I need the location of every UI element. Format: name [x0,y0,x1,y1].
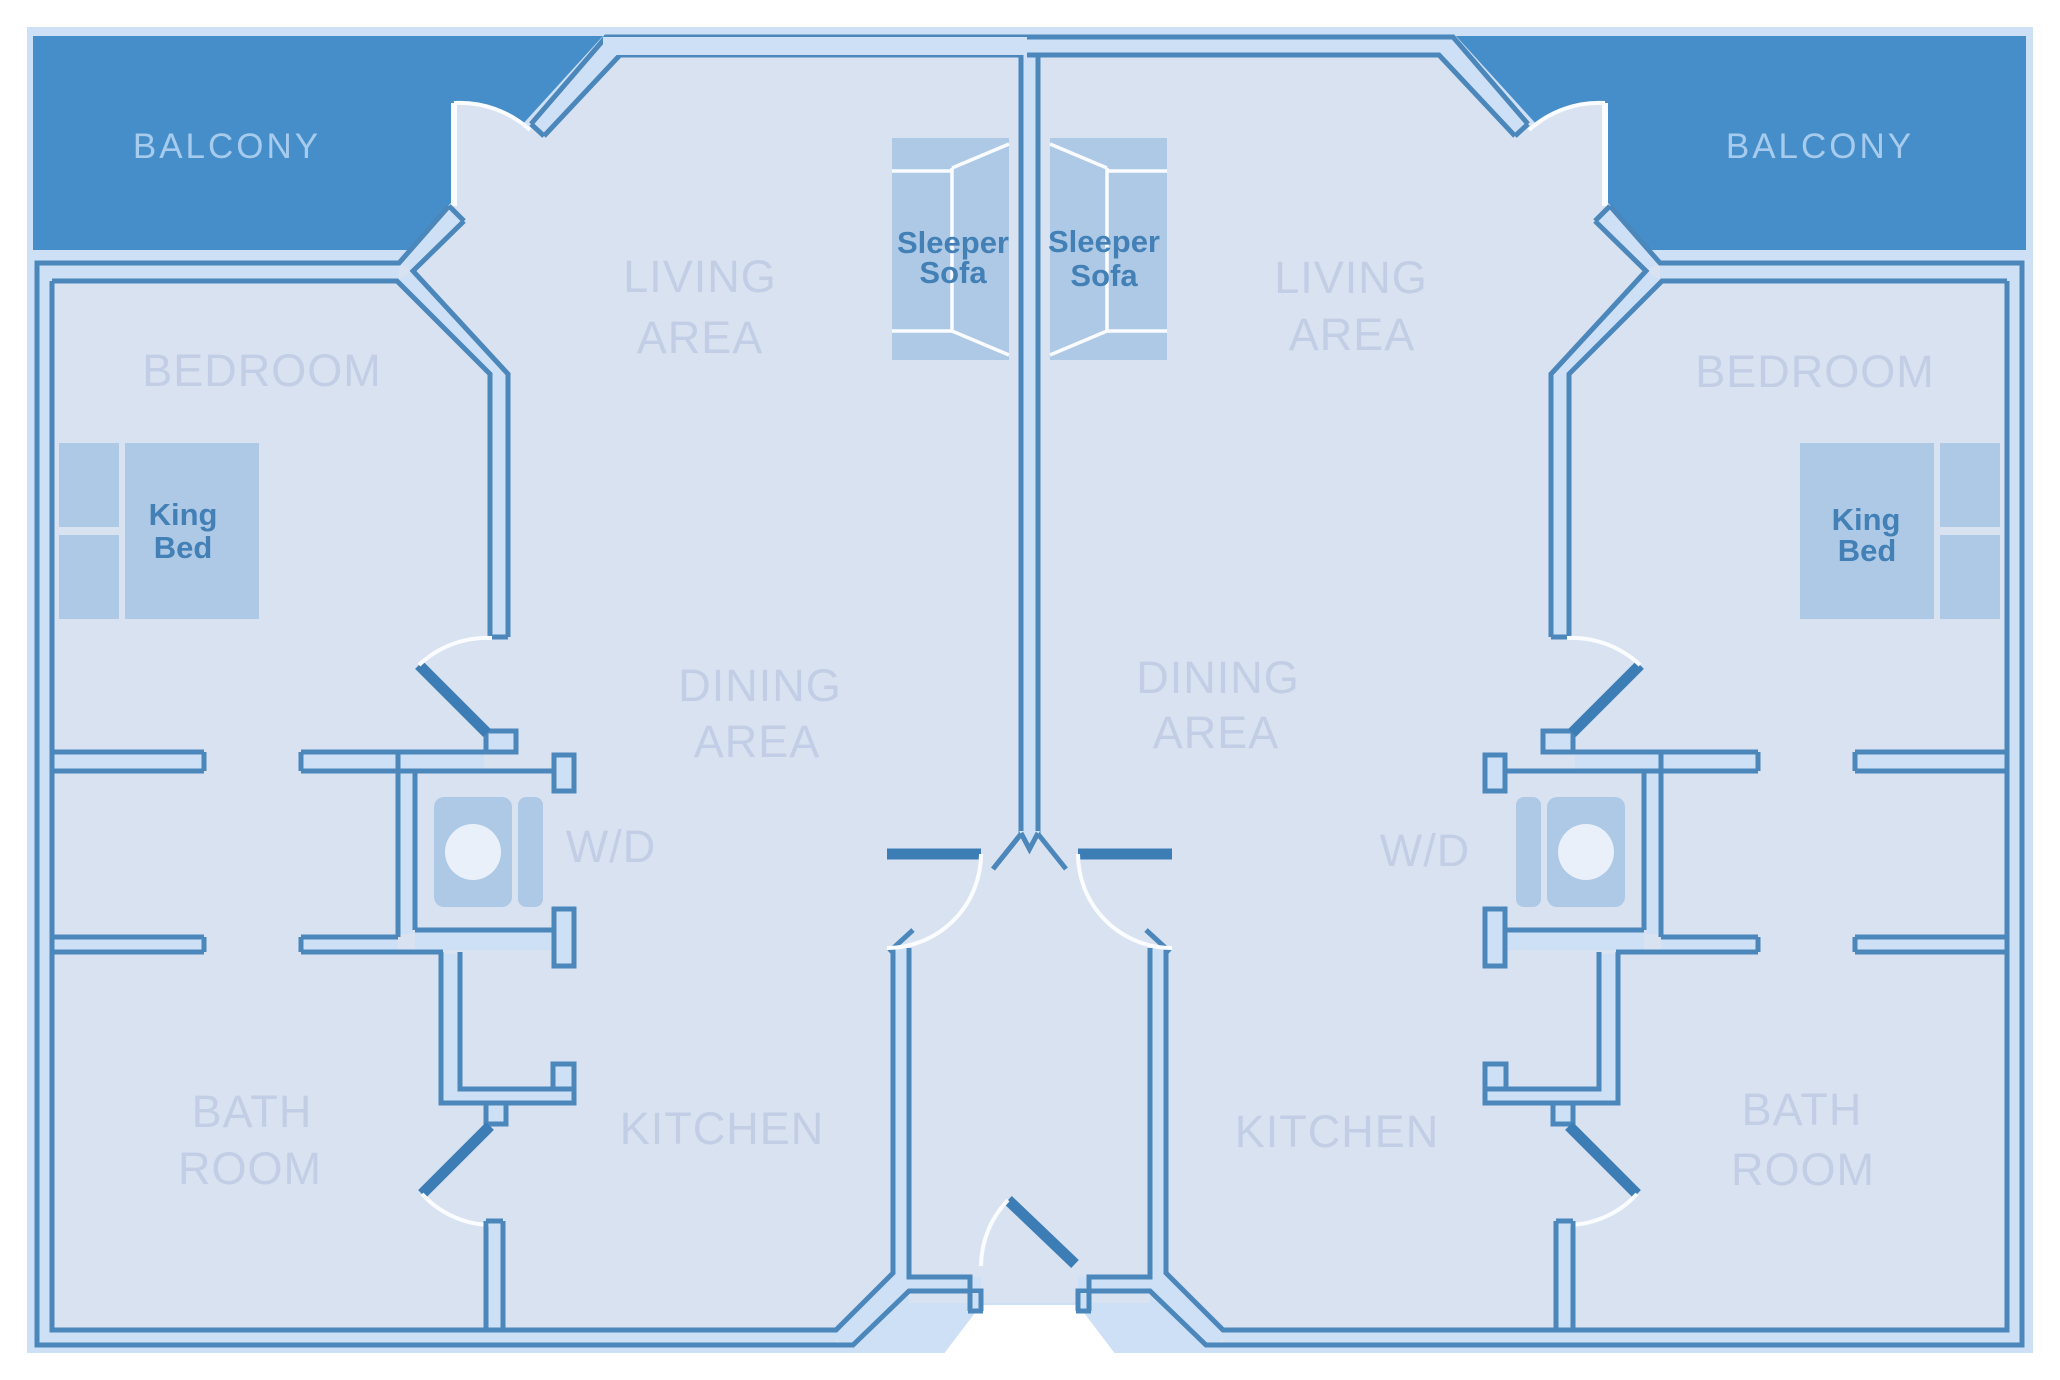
svg-text:King: King [1832,502,1901,537]
svg-text:ROOM: ROOM [178,1143,322,1194]
svg-text:AREA: AREA [637,312,764,363]
svg-text:AREA: AREA [694,716,821,767]
svg-text:Sleeper: Sleeper [1048,224,1160,259]
svg-text:BEDROOM: BEDROOM [1695,346,1935,397]
svg-text:BALCONY: BALCONY [133,127,321,166]
svg-text:W/D: W/D [566,821,656,872]
svg-text:Bed: Bed [154,530,213,565]
svg-text:AREA: AREA [1153,707,1280,758]
svg-text:BATH: BATH [192,1086,313,1137]
svg-text:Sofa: Sofa [919,255,987,290]
svg-text:W/D: W/D [1380,825,1470,876]
svg-text:KITCHEN: KITCHEN [620,1103,825,1154]
svg-text:BEDROOM: BEDROOM [142,345,382,396]
svg-text:KITCHEN: KITCHEN [1235,1106,1440,1157]
svg-text:LIVING: LIVING [1274,252,1428,303]
svg-text:AREA: AREA [1289,309,1416,360]
svg-text:DINING: DINING [1136,652,1300,703]
svg-text:DINING: DINING [678,660,842,711]
svg-text:Bed: Bed [1838,533,1897,568]
svg-text:King: King [149,497,218,532]
svg-text:BATH: BATH [1742,1084,1863,1135]
svg-text:Sofa: Sofa [1070,258,1138,293]
svg-text:ROOM: ROOM [1731,1144,1875,1195]
svg-text:LIVING: LIVING [623,251,777,302]
svg-text:BALCONY: BALCONY [1726,127,1914,166]
